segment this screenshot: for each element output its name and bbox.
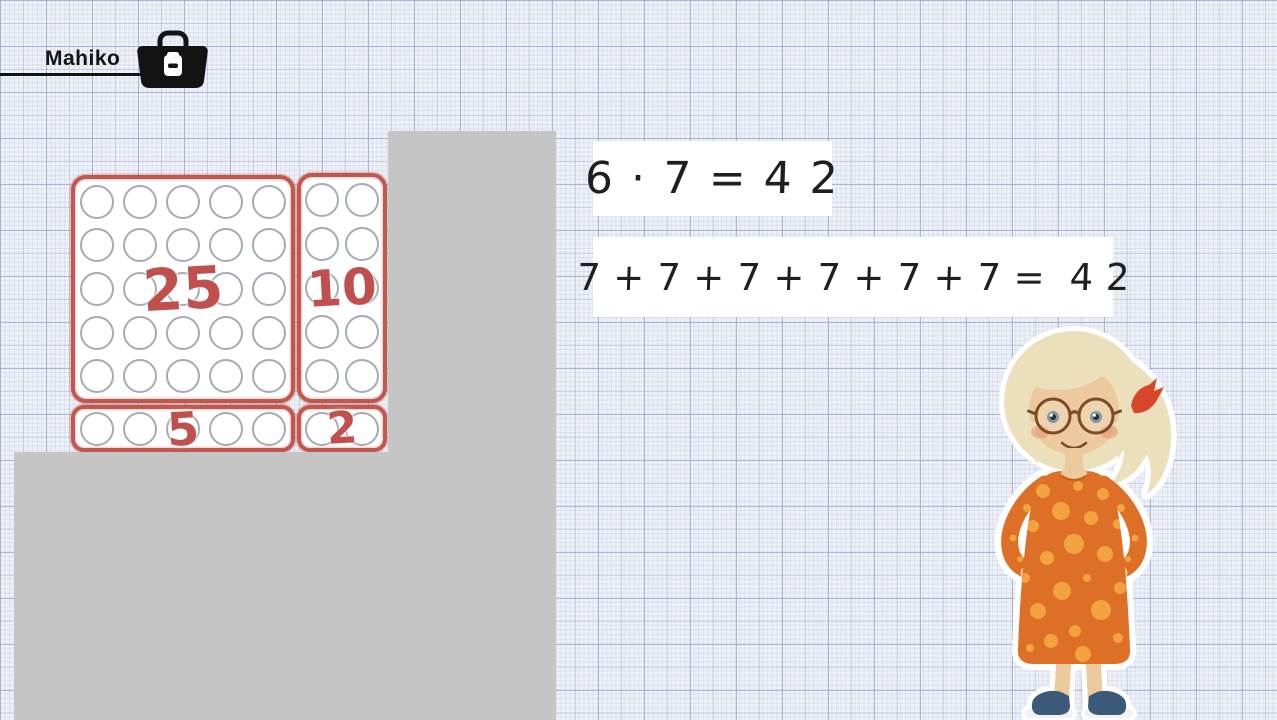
counting-dot — [345, 271, 379, 305]
counting-dot — [123, 228, 157, 262]
counting-dot — [209, 359, 243, 393]
dot-grid-5 — [75, 409, 291, 448]
equation-multiplication-text: 6 · 7 = 4 2 — [584, 153, 841, 204]
dot-block-10: 10 — [297, 173, 387, 403]
counting-dot — [345, 412, 379, 446]
counting-dot — [345, 315, 379, 349]
dot-grid-2 — [301, 409, 383, 448]
counting-dot — [252, 412, 286, 446]
counting-dot — [345, 183, 379, 217]
counting-dot — [80, 185, 114, 219]
counting-dot — [166, 412, 200, 446]
brand-underline — [0, 73, 141, 76]
dot-grid-25 — [75, 179, 291, 399]
counting-dot — [252, 359, 286, 393]
counting-dot — [123, 272, 157, 306]
counting-dot — [166, 272, 200, 306]
dot-grid-10 — [301, 177, 383, 399]
girl-character-sticker — [983, 326, 1190, 720]
counting-dot — [80, 272, 114, 306]
counting-dot — [209, 412, 243, 446]
counting-dot — [209, 185, 243, 219]
dot-block-2: 2 — [297, 405, 387, 452]
dot-block-25: 25 — [71, 175, 295, 403]
counting-dot — [305, 412, 339, 446]
counting-dot — [166, 185, 200, 219]
counting-dot — [305, 271, 339, 305]
counting-dot — [252, 316, 286, 350]
counting-dot — [345, 359, 379, 393]
equation-card-multiplication: 6 · 7 = 4 2 — [593, 141, 832, 216]
counting-dot — [209, 272, 243, 306]
counting-dot — [345, 227, 379, 261]
counting-dot — [166, 228, 200, 262]
counting-dot — [166, 316, 200, 350]
counting-dot — [305, 227, 339, 261]
equation-card-addition: 7 + 7 + 7 + 7 + 7 + 7 = 4 2 — [593, 237, 1113, 317]
counting-dot — [209, 228, 243, 262]
counting-dot — [80, 228, 114, 262]
equation-addition-text: 7 + 7 + 7 + 7 + 7 + 7 = 4 2 — [576, 256, 1131, 299]
counting-dot — [123, 412, 157, 446]
dot-block-5: 5 — [71, 405, 295, 452]
counting-dot — [252, 185, 286, 219]
counting-dot — [80, 412, 114, 446]
counting-dot — [123, 359, 157, 393]
counting-dot — [305, 183, 339, 217]
counting-dot — [305, 315, 339, 349]
cover-rect-bottom — [14, 452, 556, 720]
counting-dot — [123, 185, 157, 219]
counting-dot — [123, 316, 157, 350]
toolbox-icon[interactable] — [136, 30, 209, 90]
counting-dot — [305, 359, 339, 393]
counting-dot — [209, 316, 243, 350]
counting-dot — [80, 316, 114, 350]
counting-dot — [166, 359, 200, 393]
counting-dot — [252, 228, 286, 262]
counting-dot — [252, 272, 286, 306]
counting-dot — [80, 359, 114, 393]
app-canvas: Mahiko 25 10 5 2 6 · 7 = 4 2 7 + 7 + 7 +… — [0, 0, 1277, 720]
brand-logo-text: Mahiko — [45, 47, 120, 71]
